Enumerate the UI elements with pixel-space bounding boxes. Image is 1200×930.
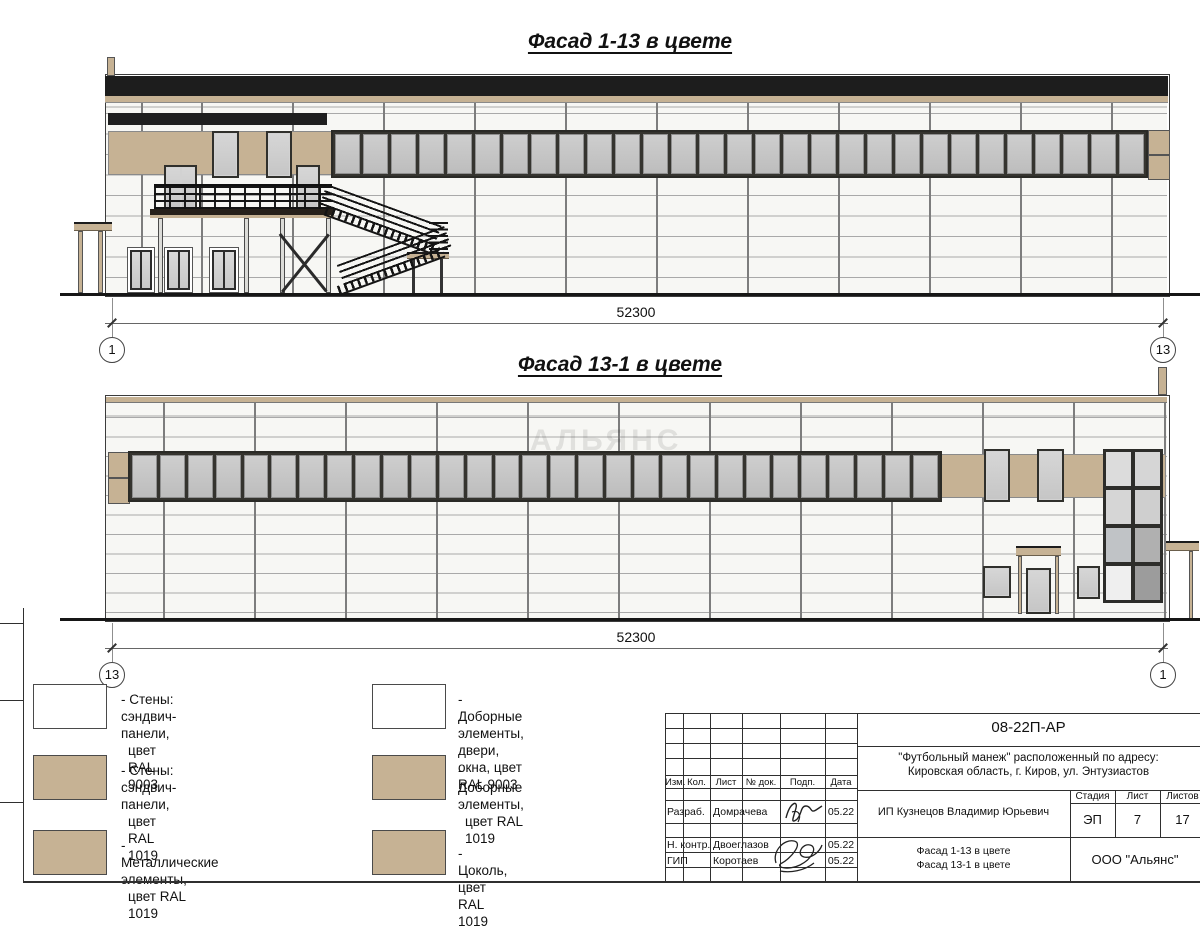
ribbon-window <box>391 134 416 174</box>
ribbon-window <box>857 455 882 498</box>
window-ribbon <box>128 451 942 502</box>
ribbon-window <box>634 455 659 498</box>
signature <box>782 798 824 826</box>
sheet-frame-left <box>23 608 24 882</box>
doc-number: 08-22П-АР <box>857 719 1200 736</box>
col-header: Изм. <box>665 777 683 788</box>
ribbon-window <box>244 455 269 498</box>
client-name: ИП Кузнецов Владимир Юрьевич <box>857 806 1070 818</box>
window <box>984 449 1010 502</box>
axis-marker: 1 <box>99 337 125 363</box>
canopy-post <box>1018 556 1022 614</box>
ribbon-window <box>475 134 500 174</box>
ribbon-window <box>531 134 556 174</box>
sheets-value: 17 <box>1160 812 1200 827</box>
legend-label: - Металлические элементы,цвет RAL 1019 <box>121 837 219 922</box>
ribbon-window <box>829 455 854 498</box>
project-address-line1: "Футбольный манеж" расположенный по адре… <box>857 752 1200 764</box>
legend-label: - Цоколь, цвет RAL 1019 <box>458 845 507 930</box>
row-role: Разраб. <box>667 806 711 818</box>
ribbon-window <box>271 455 296 498</box>
legend-swatch <box>372 684 446 729</box>
axis-marker: 1 <box>1150 662 1176 688</box>
glazing-cell <box>1106 452 1131 486</box>
ribbon-window <box>718 455 743 498</box>
ribbon-window <box>773 455 798 498</box>
ribbon-window <box>923 134 948 174</box>
ribbon-window <box>132 455 157 498</box>
ribbon-window <box>1119 134 1144 174</box>
col-header: Дата <box>825 777 857 788</box>
ribbon-window <box>522 455 547 498</box>
ribbon-window <box>643 134 668 174</box>
window-ribbon <box>331 130 1148 178</box>
support-post <box>244 218 249 293</box>
ribbon-window <box>550 455 575 498</box>
ribbon-window <box>615 134 640 174</box>
roof-trim-band <box>105 96 1168 103</box>
window <box>266 131 292 178</box>
sheet-label: Лист <box>1115 791 1160 802</box>
ribbon-window <box>363 134 388 174</box>
entrance-door <box>209 247 239 293</box>
balcony-railing <box>154 184 332 212</box>
company-name: ООО "Альянс" <box>1070 852 1200 867</box>
ribbon-window <box>587 134 612 174</box>
ribbon-window <box>801 455 826 498</box>
balcony-fascia <box>150 215 334 218</box>
roof-band <box>105 76 1168 96</box>
entrance-door <box>1026 568 1051 614</box>
row-date: 05.22 <box>825 855 857 867</box>
sheet-frame-tick <box>0 802 23 803</box>
ribbon-window <box>495 455 520 498</box>
row-date: 05.22 <box>825 839 857 851</box>
window <box>1037 449 1064 502</box>
ribbon-window <box>327 455 352 498</box>
sheets-label: Листов <box>1160 791 1200 802</box>
sheet-frame-tick <box>0 623 23 624</box>
curtain-glazing <box>1103 449 1163 603</box>
axis-marker: 13 <box>1150 337 1176 363</box>
canopy-post <box>1189 551 1193 620</box>
canopy-post <box>1055 556 1059 614</box>
stage-label: Стадия <box>1070 791 1115 802</box>
ribbon-window <box>383 455 408 498</box>
dark-louver-band <box>108 113 327 125</box>
ribbon-window <box>913 455 938 498</box>
dimension-label: 52300 <box>536 629 736 645</box>
glazing-cell <box>1106 528 1131 562</box>
drawing-title-line2: Фасад 13-1 в цвете <box>857 859 1070 871</box>
row-name: Домрачева <box>713 806 779 818</box>
ribbon-window <box>188 455 213 498</box>
glazing-cell <box>1135 452 1160 486</box>
facade-2-title: Фасад 13-1 в цвете <box>420 353 820 377</box>
ribbon-window <box>439 455 464 498</box>
ribbon-window <box>727 134 752 174</box>
ribbon-window <box>1091 134 1116 174</box>
entrance-door <box>127 247 155 293</box>
legend-swatch <box>372 755 446 800</box>
ribbon-window <box>578 455 603 498</box>
support-post <box>326 218 331 293</box>
ribbon-window <box>783 134 808 174</box>
ribbon-window <box>839 134 864 174</box>
dimension-label: 52300 <box>536 304 736 320</box>
legend-label: - Доборные элементы,цвет RAL 1019 <box>458 762 524 847</box>
ribbon-window <box>1063 134 1088 174</box>
legend-swatch <box>33 830 107 875</box>
legend-swatch <box>33 755 107 800</box>
support-post <box>158 218 163 293</box>
ribbon-window <box>335 134 360 174</box>
ribbon-window <box>699 134 724 174</box>
ribbon-window <box>1007 134 1032 174</box>
glazing-cell <box>1106 566 1131 600</box>
glazing-cell <box>1106 490 1131 524</box>
ribbon-window <box>885 455 910 498</box>
ground-line <box>60 618 1200 621</box>
stage-value: ЭП <box>1070 812 1115 827</box>
roof-trim-band <box>106 397 1167 403</box>
row-role: Н. контр. <box>667 839 715 851</box>
ribbon-window <box>216 455 241 498</box>
ribbon-window <box>662 455 687 498</box>
glazing-cell <box>1135 566 1160 600</box>
legend-swatch <box>372 830 446 875</box>
ribbon-window <box>299 455 324 498</box>
ribbon-window <box>606 455 631 498</box>
facade-1-title: Фасад 1-13 в цвете <box>430 30 830 54</box>
ribbon-window <box>160 455 185 498</box>
ribbon-window <box>411 455 436 498</box>
ribbon-window <box>755 134 780 174</box>
parapet-post <box>1158 367 1167 395</box>
col-header: Подп. <box>780 777 825 788</box>
ribbon-window <box>355 455 380 498</box>
tan-end-panel <box>1148 130 1170 180</box>
drawing-title-line1: Фасад 1-13 в цвете <box>857 845 1070 857</box>
ribbon-window <box>467 455 492 498</box>
sheet: { "facades": [ {"title": "Фасад 1-13 в ц… <box>0 0 1200 900</box>
window <box>212 131 239 178</box>
tan-end-panel <box>108 452 130 504</box>
col-header: Кол. <box>683 777 710 788</box>
project-address-line2: Кировская область, г. Киров, ул. Энтузиа… <box>857 766 1200 778</box>
col-header: № док. <box>742 777 780 788</box>
sheet-value: 7 <box>1115 812 1160 827</box>
ribbon-window <box>867 134 892 174</box>
entrance-canopy <box>1016 546 1061 556</box>
landing-leg <box>440 259 443 293</box>
ribbon-window <box>419 134 444 174</box>
canopy-post <box>98 231 103 293</box>
ribbon-window <box>690 455 715 498</box>
support-post <box>280 218 285 293</box>
window <box>1077 566 1100 599</box>
side-canopy <box>74 222 112 231</box>
signature <box>770 833 824 875</box>
legend-swatch <box>33 684 107 729</box>
entrance-door <box>164 247 193 293</box>
ribbon-window <box>671 134 696 174</box>
parapet-post <box>107 57 115 76</box>
col-header: Лист <box>710 777 742 788</box>
ribbon-window <box>559 134 584 174</box>
ribbon-window <box>503 134 528 174</box>
row-role: ГИП <box>667 855 711 867</box>
ribbon-window <box>746 455 771 498</box>
ribbon-window <box>979 134 1004 174</box>
glazing-cell <box>1135 528 1160 562</box>
row-date: 05.22 <box>825 806 857 818</box>
ribbon-window <box>1035 134 1060 174</box>
canopy-post <box>78 231 83 293</box>
ribbon-window <box>811 134 836 174</box>
side-canopy <box>1166 541 1199 551</box>
ribbon-window <box>951 134 976 174</box>
ribbon-window <box>447 134 472 174</box>
glazing-cell <box>1135 490 1160 524</box>
window <box>983 566 1011 598</box>
ground-line <box>60 293 1200 296</box>
sheet-frame-bottom <box>23 881 1200 883</box>
ribbon-window <box>895 134 920 174</box>
sheet-frame-tick <box>0 700 23 701</box>
